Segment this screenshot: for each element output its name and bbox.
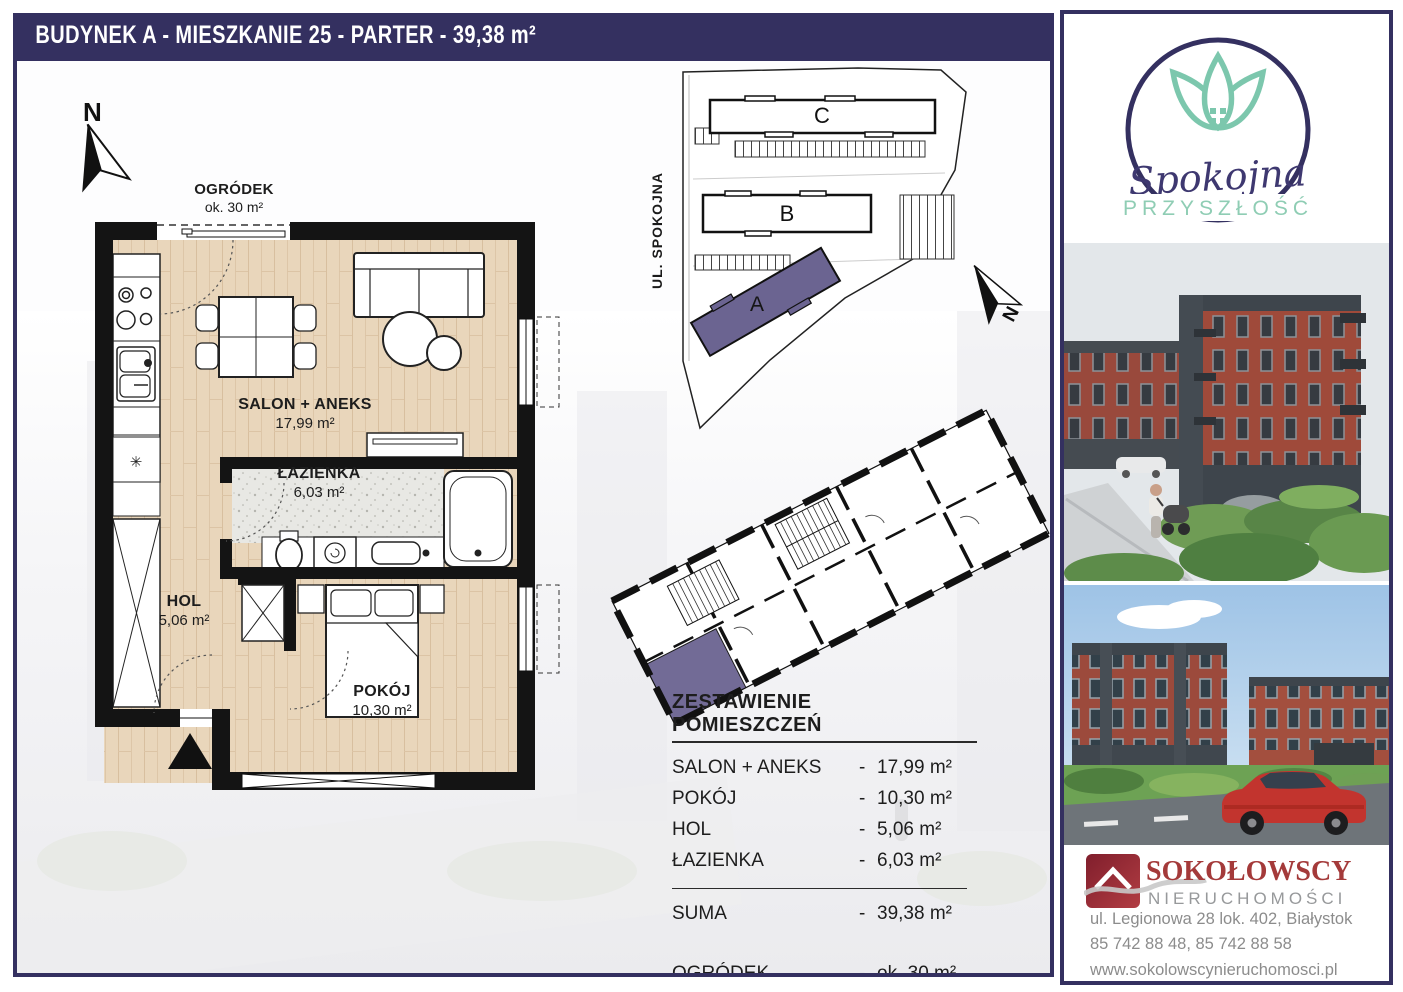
parking-row (735, 141, 925, 157)
contact-block: ul. Legionowa 28 lok. 402, Białystok 85 … (1090, 908, 1380, 981)
agency-address: ul. Legionowa 28 lok. 402, Białystok (1090, 908, 1380, 931)
building-a-label: A (750, 293, 764, 316)
wardrobe-hol (242, 585, 284, 641)
brand-sidebar: Spokojna PRZYSZŁOŚĆ (1060, 10, 1393, 985)
development-photo-2 (1064, 585, 1389, 845)
garage-block (900, 195, 954, 259)
table-row: HOL - 5,06 m² (672, 819, 977, 841)
agency-name: SOKOŁOWSCY (1146, 856, 1351, 887)
hall-label: HOL 5,06 m² (129, 593, 239, 629)
lotus-house-icon (1163, 56, 1274, 136)
garden-label: OGRÓDEK ok. 30 m² (159, 181, 309, 215)
table-row: SALON + ANEKS - 17,99 m² (672, 757, 977, 779)
agency-logo: SOKOŁOWSCY NIERUCHOMOŚCI (1084, 850, 1374, 912)
brand-sidebar-content: Spokojna PRZYSZŁOŚĆ (1064, 14, 1389, 981)
site-plan: C B A N (615, 61, 1050, 451)
photo2-left-building (1072, 643, 1227, 775)
development-logo: Spokojna PRZYSZŁOŚĆ (1083, 22, 1353, 247)
north-label: N (83, 97, 102, 127)
floorplan-panel-content: N OGRÓDEK ok. 30 m² (17, 61, 1050, 973)
agency-website: www.sokolowscynieruchomosci.pl (1090, 959, 1380, 981)
site-north-label: N (999, 303, 1024, 325)
page-title: BUDYNEK A - MIESZKANIE 25 - PARTER - 39,… (13, 21, 536, 50)
bathroom-label: ŁAZIENKA 6,03 m² (249, 465, 389, 501)
table-title: ZESTAWIENIE POMIESZCZEŃ (672, 691, 977, 743)
building-c: C (710, 96, 935, 137)
faded-hedge (37, 831, 187, 891)
brand-caps-name: PRZYSZŁOŚĆ (1123, 196, 1313, 220)
development-photo-1 (1064, 243, 1389, 581)
site-north-compass-icon: N (958, 255, 1024, 325)
salon-label: SALON + ANEKS 17,99 m² (225, 396, 385, 432)
fridge-icon: ✳ (130, 454, 143, 471)
street-label: UL. SPOKOJNA (649, 149, 665, 289)
building-b: B (703, 191, 871, 236)
agency-logo-square (1086, 854, 1140, 908)
building-c-label: C (814, 103, 830, 128)
parking-row (695, 255, 790, 270)
tv-unit (367, 433, 463, 457)
washer-icon (314, 537, 356, 569)
floorplan-panel: N OGRÓDEK ok. 30 m² (13, 57, 1054, 977)
agency-phones: 85 742 88 48, 85 742 88 58 (1090, 933, 1380, 956)
sink-icon (117, 347, 155, 401)
table-garden-row: OGRÓDEK - ok. 30 m² (672, 963, 977, 973)
room-summary-table: ZESTAWIENIE POMIESZCZEŃ SALON + ANEKS - … (672, 691, 977, 973)
title-banner: BUDYNEK A - MIESZKANIE 25 - PARTER - 39,… (13, 13, 1054, 57)
photo2-right-building (1249, 677, 1389, 765)
sofa (354, 253, 484, 317)
building-b-label: B (780, 201, 795, 226)
kitchen-units: ✳ (113, 254, 160, 516)
table-row: ŁAZIENKA - 6,03 m² (672, 850, 977, 872)
bedroom-label: POKÓJ 10,30 m² (312, 683, 452, 719)
photo1-main-building (1179, 295, 1366, 513)
washbasin-icon (372, 542, 420, 564)
table-total-row: SUMA - 39,38 m² (672, 903, 977, 925)
north-compass-icon: N (59, 73, 159, 198)
faded-hedge (447, 841, 637, 901)
table-row: POKÓJ - 10,30 m² (672, 788, 977, 810)
agency-subtitle: NIERUCHOMOŚCI (1148, 889, 1346, 908)
table-divider (672, 888, 967, 889)
toilet-icon (276, 539, 302, 571)
